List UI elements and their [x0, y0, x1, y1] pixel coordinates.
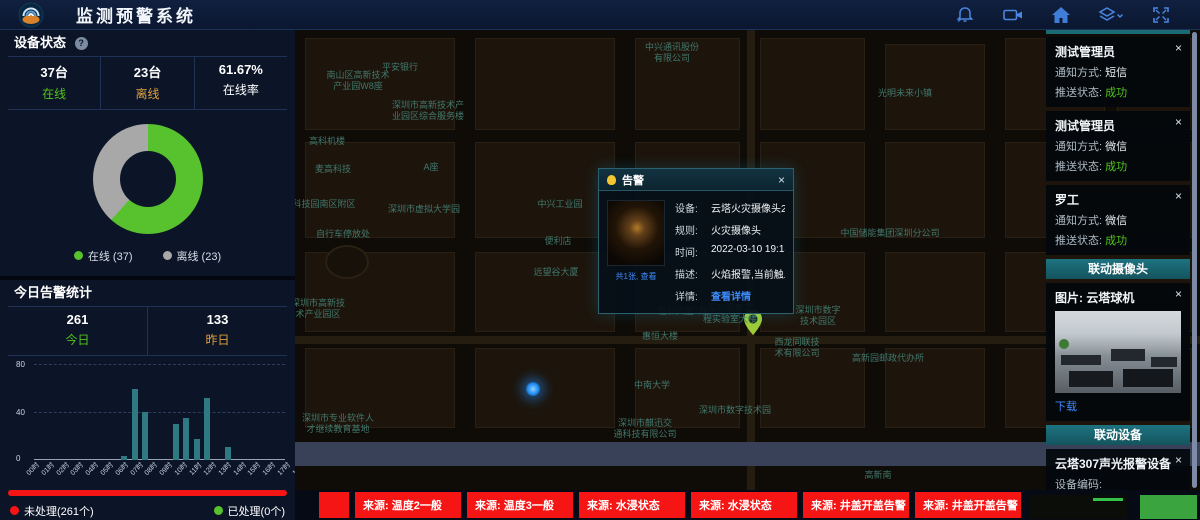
linked-camera-card: 图片: 云塔球机 × 下载	[1046, 283, 1190, 421]
map-label: 深圳市数字 技术园区	[795, 305, 840, 327]
hour-xlabels: 00时01时02时03时04时05时06时07时08时09时10时11时12时1…	[28, 463, 293, 480]
handled-dot	[214, 506, 223, 515]
ytick-40: 40	[16, 408, 25, 417]
alert-bulb-icon	[607, 175, 616, 185]
map-label: 高新南	[864, 470, 891, 481]
alert-popup-title: 告警	[622, 172, 644, 188]
bar-slot	[192, 439, 202, 460]
bar	[194, 439, 200, 460]
device-status-title-text: 设备状态	[14, 35, 66, 50]
alert-field-rule: 规则: 火灾摄像头	[675, 222, 785, 237]
home-icon[interactable]	[1050, 6, 1072, 24]
alert-snapshot-image[interactable]	[607, 200, 665, 266]
photo-shape	[1061, 355, 1101, 365]
today-count: 261	[8, 312, 147, 327]
help-icon[interactable]: ?	[75, 37, 88, 50]
alert-field-description: 描述: 火焰报警,当前触发值为	[675, 266, 785, 281]
stat-online-rate: 61.67% 在线率	[195, 57, 287, 109]
alarm-ticker-item[interactable]: 来源: 温度2一般	[355, 492, 461, 518]
notification-bell-icon[interactable]	[954, 6, 976, 24]
photo-shape	[1069, 371, 1113, 387]
close-icon[interactable]: ×	[1175, 190, 1182, 202]
map-label: 高科机楼	[309, 136, 345, 147]
alarm-ticker-item[interactable]: 来源: 井盖开盖告警	[915, 492, 1021, 518]
online-rate: 61.67%	[195, 62, 287, 77]
map-plaza	[325, 245, 369, 279]
today-label: 今日	[8, 331, 147, 348]
map-block	[885, 142, 985, 238]
progress-legend: 未处理(261个) 已处理(0个)	[10, 503, 285, 520]
handled-legend: 已处理(0个)	[214, 503, 285, 519]
legend-offline-dot	[163, 251, 172, 260]
download-link[interactable]: 下载	[1055, 398, 1181, 414]
notify-name: 测试管理员	[1055, 117, 1181, 134]
right-panel: 测试管理员 × 通知方式: 短信 推送状态: 成功 测试管理员 × 通知方式: …	[1046, 30, 1190, 520]
map-block	[305, 142, 455, 238]
alert-field-time: 时间: 2022-03-10 19:13:07	[675, 244, 785, 259]
bar-slot	[181, 418, 191, 460]
map-block	[885, 44, 985, 130]
bar	[204, 398, 210, 460]
alert-popup-header: 告警 ×	[599, 169, 793, 191]
bar	[183, 418, 189, 460]
map-label: 便利店	[544, 236, 571, 247]
stat-today: 261 今日	[8, 307, 148, 355]
notify-name: 测试管理员	[1055, 43, 1181, 60]
fullscreen-icon[interactable]	[1150, 6, 1172, 24]
header: 监测预警系统	[0, 0, 1200, 30]
unhandled-dot	[10, 506, 19, 515]
bar-slot	[140, 412, 150, 460]
bar	[173, 424, 179, 460]
map-label: 深圳市专业软件人 才继续教育基地	[302, 413, 374, 435]
legend-online-dot	[74, 251, 83, 260]
alarm-ticker-partial-item[interactable]	[319, 492, 349, 518]
legend-offline: 离线 (23)	[163, 248, 222, 264]
online-rate-label: 在线率	[195, 81, 287, 98]
camera-snapshot-image[interactable]	[1055, 311, 1181, 393]
offline-count: 23台	[101, 62, 193, 81]
map-label: 中兴工业园	[537, 199, 582, 210]
video-camera-icon[interactable]	[1002, 6, 1024, 24]
notify-name: 罗工	[1055, 191, 1181, 208]
map-block	[760, 38, 865, 130]
map-label: 深圳市高新技 术产业园区	[295, 298, 345, 320]
view-detail-link[interactable]: 查看详情	[711, 288, 785, 303]
video-thumbnail[interactable]	[1030, 495, 1127, 519]
alert-field-detail: 详情: 查看详情	[675, 288, 785, 303]
map-block	[475, 38, 615, 130]
device-status-donut-chart	[93, 124, 203, 234]
today-alarm-stats: 261 今日 133 昨日	[8, 306, 287, 356]
bar-slot	[129, 389, 139, 460]
photo-shape	[1123, 369, 1173, 387]
photo-shape	[1111, 349, 1145, 361]
donut-hole	[120, 151, 176, 207]
alert-fields: 设备: 云塔火灾摄像头202 规则: 火灾摄像头 时间: 2022-03-10 …	[675, 200, 785, 303]
map-layers-icon[interactable]	[1098, 6, 1124, 24]
map-label: 中兴通讯股份 有限公司	[645, 42, 699, 64]
stat-online: 37台 在线	[8, 57, 101, 109]
bar	[121, 456, 127, 460]
device-status-title: 设备状态 ?	[0, 30, 295, 56]
stat-offline: 23台 离线	[101, 57, 194, 109]
notification-card: 罗工 × 通知方式: 微信 推送状态: 成功	[1046, 185, 1190, 255]
online-label: 在线	[8, 85, 100, 102]
close-icon[interactable]: ×	[1175, 454, 1182, 466]
map-label: 深圳市麒迅交 通科技有限公司	[613, 418, 676, 440]
bar-slot	[119, 456, 129, 460]
photo-plant	[1059, 339, 1069, 349]
bar	[132, 389, 138, 460]
alarm-ticker-item[interactable]: 来源: 井盖开盖告警	[803, 492, 909, 518]
today-alarm-title: 今日告警统计	[0, 280, 295, 306]
video-timestamp-overlay	[1093, 498, 1123, 501]
map-label: 光明未来小镇	[878, 88, 932, 99]
map-label: 远望谷大厦	[533, 267, 578, 278]
map-block	[760, 348, 865, 428]
yesterday-count: 133	[148, 312, 287, 327]
linked-device-header: 联动设备	[1046, 425, 1190, 445]
right-panel-top-divider	[1046, 30, 1190, 34]
device-status-stats: 37台 在线 23台 离线 61.67% 在线率	[8, 56, 287, 110]
close-icon[interactable]: ×	[1175, 288, 1182, 300]
device-status-section: 设备状态 ? 37台 在线 23台 离线 61.67% 在线率 在线 (37) …	[0, 30, 295, 280]
map-label: 南山区高新技术 产业园W8座	[326, 70, 389, 92]
map-label: 深圳市高新技术产 业园区综合服务楼	[392, 100, 464, 122]
video-thumbnail-green[interactable]	[1140, 495, 1197, 519]
page-title: 监测预警系统	[76, 2, 196, 27]
alarm-ticker-item[interactable]: 来源: 水浸状态	[579, 492, 685, 518]
donut-legend: 在线 (37) 离线 (23)	[0, 248, 295, 264]
today-alarm-section: 今日告警统计 261 今日 133 昨日 80 40 0 00时01时02时03…	[0, 280, 295, 520]
bar-slot	[202, 398, 212, 460]
right-scrollbar[interactable]	[1192, 32, 1197, 488]
stat-yesterday: 133 昨日	[148, 307, 287, 355]
map-label: 深圳市虚拟大学园	[388, 204, 460, 215]
bar-slot	[171, 424, 181, 460]
bar	[225, 447, 231, 460]
online-count: 37台	[8, 62, 100, 81]
linked-camera-header: 联动摄像头	[1046, 259, 1190, 279]
map-label: 中南大学	[634, 380, 670, 391]
left-panel: 设备状态 ? 37台 在线 23台 离线 61.67% 在线率 在线 (37) …	[0, 30, 295, 520]
bar-slot	[223, 447, 233, 460]
map-block	[475, 252, 615, 332]
photo-shape	[1151, 357, 1177, 367]
device-dot-marker[interactable]	[526, 382, 540, 396]
bar	[142, 412, 148, 460]
unhandled-progress-bar	[8, 490, 287, 496]
map-block	[475, 348, 615, 428]
ytick-80: 80	[16, 360, 25, 369]
map-label: 深圳市数字技术园	[699, 405, 771, 416]
alarm-ticker: 来源: 温度2一般来源: 温度3一般来源: 水浸状态来源: 水浸状态来源: 井盖…	[295, 490, 1200, 520]
ytick-0: 0	[16, 454, 20, 463]
close-icon[interactable]: ×	[1175, 42, 1182, 54]
map-label: 麦高科技	[315, 164, 351, 175]
map-label: 西龙同联技 术有限公司	[774, 337, 819, 359]
camera-card-title: 图片: 云塔球机	[1055, 289, 1181, 306]
alert-popup: 告警 × 共1张, 查看 设备: 云塔火灾摄像头202 规则: 火灾摄像头 时间…	[598, 168, 794, 314]
map-block	[475, 142, 615, 238]
device-card-title: 云塔307声光报警设备	[1055, 455, 1181, 472]
alert-snapshot-caption[interactable]: 共1张, 查看	[607, 271, 665, 282]
alarm-ticker-item[interactable]: 来源: 温度3一般	[467, 492, 573, 518]
alarm-ticker-item[interactable]: 来源: 水浸状态	[691, 492, 797, 518]
map-label: 高新园邮政代办所	[852, 353, 924, 364]
legend-online: 在线 (37)	[74, 248, 133, 264]
app-logo-icon	[18, 2, 44, 28]
hourly-alarm-bar-chart: 80 40 0	[8, 364, 287, 460]
close-icon[interactable]: ×	[1175, 116, 1182, 128]
map-label: A座	[423, 162, 438, 173]
popup-close-icon[interactable]: ×	[778, 174, 785, 186]
hour-bars	[36, 364, 285, 460]
map-label: 中国储能集团深圳分公司	[840, 228, 939, 239]
alert-field-device: 设备: 云塔火灾摄像头202	[675, 200, 785, 215]
map-label: 自行车停放处	[316, 229, 370, 240]
map-block	[885, 252, 985, 332]
map-label: 惠恒大楼	[642, 331, 678, 342]
hour-xlabel: 18时	[290, 460, 295, 482]
notification-card: 测试管理员 × 通知方式: 微信 推送状态: 成功	[1046, 111, 1190, 181]
unhandled-legend: 未处理(261个)	[10, 503, 94, 519]
map-label: 科技园南区附区	[295, 199, 356, 210]
notification-card: 测试管理员 × 通知方式: 短信 推送状态: 成功	[1046, 37, 1190, 107]
offline-label: 离线	[101, 85, 193, 102]
alert-popup-body: 共1张, 查看 设备: 云塔火灾摄像头202 规则: 火灾摄像头 时间: 202…	[599, 191, 793, 313]
yesterday-label: 昨日	[148, 331, 287, 348]
